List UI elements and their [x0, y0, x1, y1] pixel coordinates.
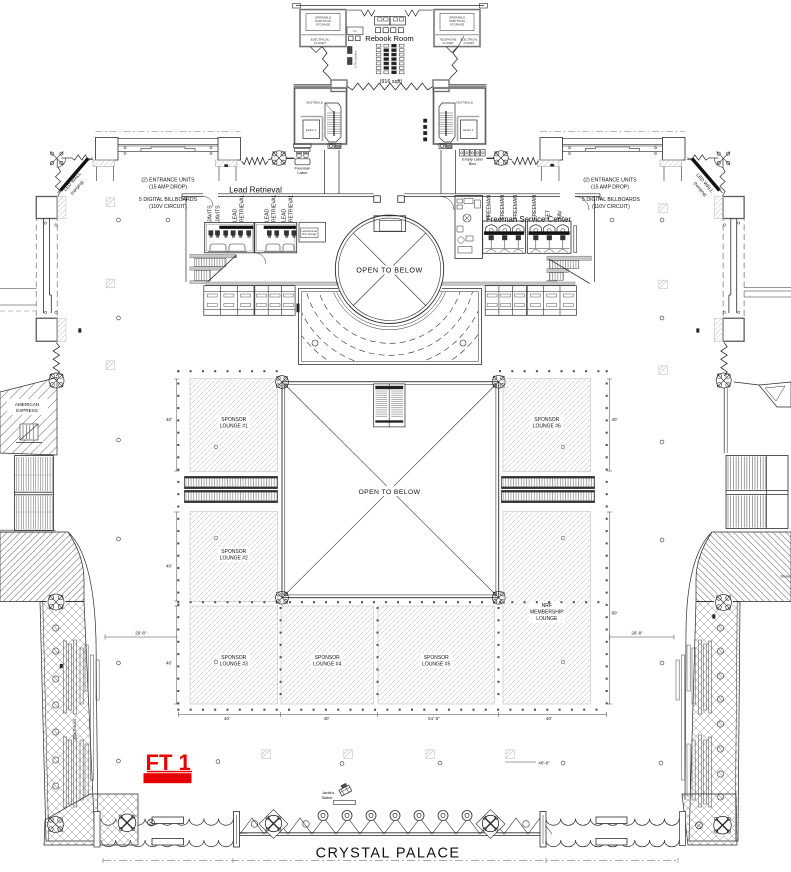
svg-text:Rebook Room: Rebook Room [365, 34, 414, 43]
svg-text:LOUNGE: LOUNGE [536, 616, 558, 622]
svg-text:CLOSET: CLOSET [442, 41, 453, 45]
svg-text:VESTIBULE: VESTIBULE [306, 101, 323, 105]
svg-text:LEAD: LEAD [282, 209, 288, 222]
svg-text:LEAD: LEAD [233, 209, 239, 222]
svg-text:SPONSOR: SPONSOR [221, 417, 246, 423]
svg-text:FREEMAN: FREEMAN [500, 195, 506, 220]
svg-text:SPONSOR: SPONSOR [221, 655, 246, 661]
svg-text:40': 40' [224, 716, 230, 721]
svg-text:Starbucks: Starbucks [72, 718, 78, 740]
svg-text:Bins: Bins [469, 162, 476, 166]
svg-text:RETRIEVAL: RETRIEVAL [272, 194, 278, 222]
svg-text:Prize Storage: Prize Storage [302, 233, 317, 236]
svg-text:RETRIEVAL: RETRIEVAL [240, 194, 246, 222]
svg-text:MEMBERSHIP: MEMBERSHIP [530, 609, 564, 615]
svg-text:LOUNGE #1: LOUNGE #1 [220, 424, 248, 430]
svg-text:SPONSOR: SPONSOR [534, 417, 559, 423]
svg-text:LOUNGE #3: LOUNGE #3 [220, 662, 248, 668]
svg-text:Lead Retrieval: Lead Retrieval [229, 186, 282, 195]
svg-text:5 DIGITAL BILLBOARDS: 5 DIGITAL BILLBOARDS [582, 197, 640, 203]
svg-text:80': 80' [612, 611, 618, 616]
svg-text:Labor: Labor [297, 170, 308, 175]
svg-text:STORAGE: STORAGE [450, 23, 465, 27]
svg-text:CLOSET: CLOSET [463, 41, 474, 45]
svg-text:CLOSET: CLOSET [314, 41, 326, 45]
svg-text:ELEV 1: ELEV 1 [463, 128, 474, 132]
svg-text:SPONSOR: SPONSOR [221, 549, 246, 555]
svg-text:NRF: NRF [542, 603, 552, 609]
svg-text:(2) ENTRANCE UNITS: (2) ENTRANCE UNITS [583, 178, 637, 184]
svg-text:LOUNGE #5: LOUNGE #5 [422, 662, 450, 668]
svg-text:40': 40' [166, 661, 172, 666]
svg-text:RETRIEVAL: RETRIEVAL [289, 194, 295, 222]
svg-text:SPONSOR: SPONSOR [315, 655, 340, 661]
svg-text:box: box [353, 29, 358, 33]
svg-text:Shake: Shake [780, 574, 791, 579]
svg-text:FREEMAN: FREEMAN [532, 195, 538, 220]
svg-text:CRYSTAL PALACE: CRYSTAL PALACE [316, 846, 461, 862]
svg-text:VESTIBULE: VESTIBULE [456, 101, 473, 105]
svg-text:40'-8": 40'-8" [538, 761, 550, 766]
svg-text:29'-8": 29'-8" [135, 631, 147, 636]
svg-text:5 DIGITAL BILLBOARDS: 5 DIGITAL BILLBOARDS [139, 197, 197, 203]
svg-text:OPEN TO BELOW: OPEN TO BELOW [356, 265, 423, 274]
svg-text:Javits's: Javits's [322, 791, 334, 795]
svg-text:LOUNGE #2: LOUNGE #2 [220, 555, 248, 561]
svg-text:OPEN TO BELOW: OPEN TO BELOW [359, 489, 421, 496]
svg-text:Statue: Statue [322, 796, 333, 800]
svg-text:LOUNGE #4: LOUNGE #4 [313, 662, 341, 668]
svg-text:51'-5": 51'-5" [428, 716, 440, 721]
svg-text:AMERICAN: AMERICAN [15, 402, 39, 407]
svg-text:LOUNGE #6: LOUNGE #6 [533, 424, 561, 430]
svg-text:29'-8": 29'-8" [631, 631, 643, 636]
svg-text:JAVITS: JAVITS [208, 205, 214, 222]
svg-text:LEAD: LEAD [265, 209, 271, 222]
svg-text:2 TV monitors: 2 TV monitors [354, 50, 358, 68]
svg-text:40': 40' [612, 417, 618, 422]
svg-text:JAVITS: JAVITS [216, 205, 222, 222]
svg-text:(15 AMP DROP): (15 AMP DROP) [591, 185, 629, 191]
svg-text:(2) ENTRANCE UNITS: (2) ENTRANCE UNITS [141, 178, 195, 184]
svg-text:FET: FET [545, 210, 551, 219]
svg-text:40': 40' [324, 716, 330, 721]
svg-text:40': 40' [166, 564, 172, 569]
svg-text:SPONSOR: SPONSOR [424, 655, 449, 661]
svg-text:FREEMAN: FREEMAN [513, 195, 519, 220]
svg-text:STORAGE: STORAGE [316, 23, 331, 27]
svg-text:EXPRESS: EXPRESS [16, 408, 38, 413]
svg-text:FAV: FAV [558, 210, 564, 220]
svg-text:ELEV 1: ELEV 1 [306, 128, 317, 132]
svg-text:(110V CIRCUIT): (110V CIRCUIT) [592, 204, 630, 210]
svg-text:40': 40' [166, 417, 172, 422]
svg-text:FREEMAN: FREEMAN [487, 195, 493, 220]
svg-text:40': 40' [546, 716, 552, 721]
svg-text:(15 AMP DROP): (15 AMP DROP) [149, 185, 187, 191]
svg-text:(110V CIRCUIT): (110V CIRCUIT) [149, 204, 187, 210]
